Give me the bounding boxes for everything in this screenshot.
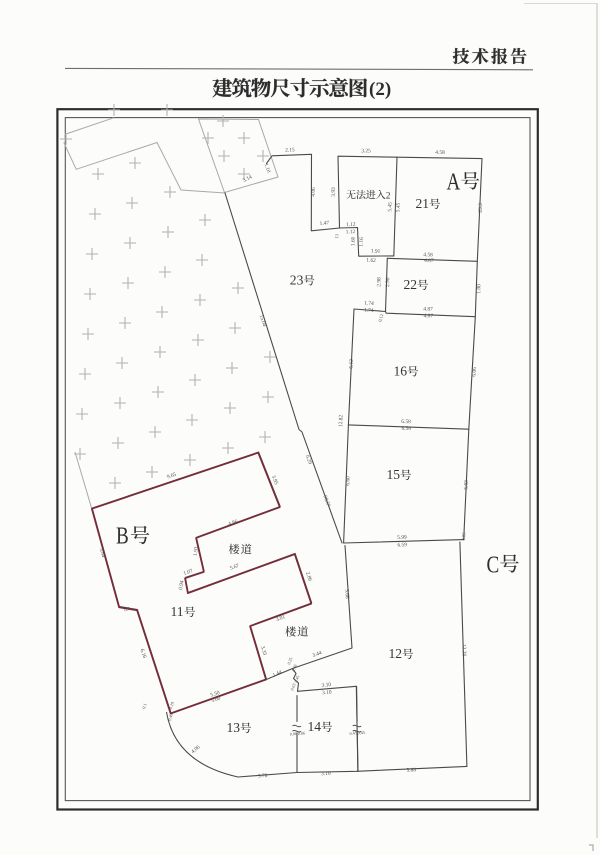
svg-text:5.99: 5.99 bbox=[397, 535, 407, 541]
svg-text:6.58: 6.58 bbox=[401, 426, 411, 432]
svg-text:14: 14 bbox=[308, 719, 322, 734]
svg-text:12.82: 12.82 bbox=[338, 415, 344, 428]
svg-text:3.10: 3.10 bbox=[321, 682, 331, 689]
svg-text:21: 21 bbox=[416, 196, 430, 211]
svg-text:0.45: 0.45 bbox=[357, 730, 365, 736]
svg-text:11: 11 bbox=[171, 604, 184, 619]
svg-text:1.12: 1.12 bbox=[346, 229, 356, 235]
svg-text:6.03: 6.03 bbox=[463, 480, 469, 490]
svg-text:1.12: 1.12 bbox=[346, 222, 356, 228]
svg-text:16: 16 bbox=[394, 364, 408, 379]
svg-text:4.58: 4.58 bbox=[435, 150, 445, 156]
svg-text:3.78: 3.78 bbox=[258, 773, 268, 780]
svg-text:6.06: 6.06 bbox=[472, 367, 479, 377]
svg-text:0.06: 0.06 bbox=[289, 731, 297, 737]
svg-text:1.74: 1.74 bbox=[364, 308, 374, 315]
svg-text:1.47: 1.47 bbox=[319, 220, 329, 227]
svg-text:4.87: 4.87 bbox=[423, 306, 433, 312]
svg-text:3.10: 3.10 bbox=[321, 771, 331, 778]
svg-text:3.93: 3.93 bbox=[331, 187, 337, 197]
svg-text:3.25: 3.25 bbox=[361, 148, 371, 154]
svg-text:1.62: 1.62 bbox=[366, 258, 376, 265]
svg-text:1.16: 1.16 bbox=[359, 237, 365, 247]
svg-text:15: 15 bbox=[387, 467, 401, 482]
svg-text:1.00: 1.00 bbox=[476, 284, 482, 294]
svg-text:13: 13 bbox=[227, 720, 241, 735]
svg-text:3.10: 3.10 bbox=[322, 689, 332, 696]
svg-text:13: 13 bbox=[334, 233, 339, 238]
svg-text:22: 22 bbox=[404, 277, 418, 292]
svg-text:5.88: 5.88 bbox=[406, 767, 416, 773]
svg-text:5.45: 5.45 bbox=[395, 202, 401, 212]
svg-text:12.28: 12.28 bbox=[461, 644, 467, 657]
svg-text:0.05: 0.05 bbox=[461, 532, 466, 541]
svg-text:6.60: 6.60 bbox=[345, 476, 351, 486]
svg-text:1.60: 1.60 bbox=[350, 236, 356, 246]
svg-text:6.59: 6.59 bbox=[397, 542, 407, 548]
svg-text:4.06: 4.06 bbox=[311, 187, 317, 197]
svg-text:1.93: 1.93 bbox=[193, 546, 200, 556]
svg-text:B: B bbox=[116, 521, 129, 549]
svg-text:12: 12 bbox=[389, 646, 403, 661]
svg-text:4.87: 4.87 bbox=[424, 313, 434, 319]
svg-text:3.68: 3.68 bbox=[343, 589, 350, 599]
svg-text:0.45: 0.45 bbox=[349, 730, 357, 736]
svg-text:2.98: 2.98 bbox=[376, 277, 382, 287]
svg-text:2: 2 bbox=[386, 191, 391, 201]
svg-text:C: C bbox=[487, 550, 500, 578]
svg-text:23.3: 23.3 bbox=[478, 203, 484, 213]
svg-text:4.87: 4.87 bbox=[424, 258, 434, 264]
svg-text:A: A bbox=[447, 167, 461, 195]
svg-text:2.90: 2.90 bbox=[385, 277, 391, 287]
svg-text:(2): (2) bbox=[369, 79, 391, 100]
svg-text:5.45: 5.45 bbox=[387, 202, 393, 212]
svg-text:6.12: 6.12 bbox=[348, 359, 354, 369]
svg-text:6.58: 6.58 bbox=[401, 419, 411, 425]
svg-text:1.74: 1.74 bbox=[364, 301, 374, 308]
svg-text:1.91: 1.91 bbox=[371, 248, 381, 255]
svg-text:23: 23 bbox=[290, 273, 304, 288]
svg-text:0.06: 0.06 bbox=[297, 730, 305, 736]
svg-text:2.15: 2.15 bbox=[285, 147, 295, 153]
